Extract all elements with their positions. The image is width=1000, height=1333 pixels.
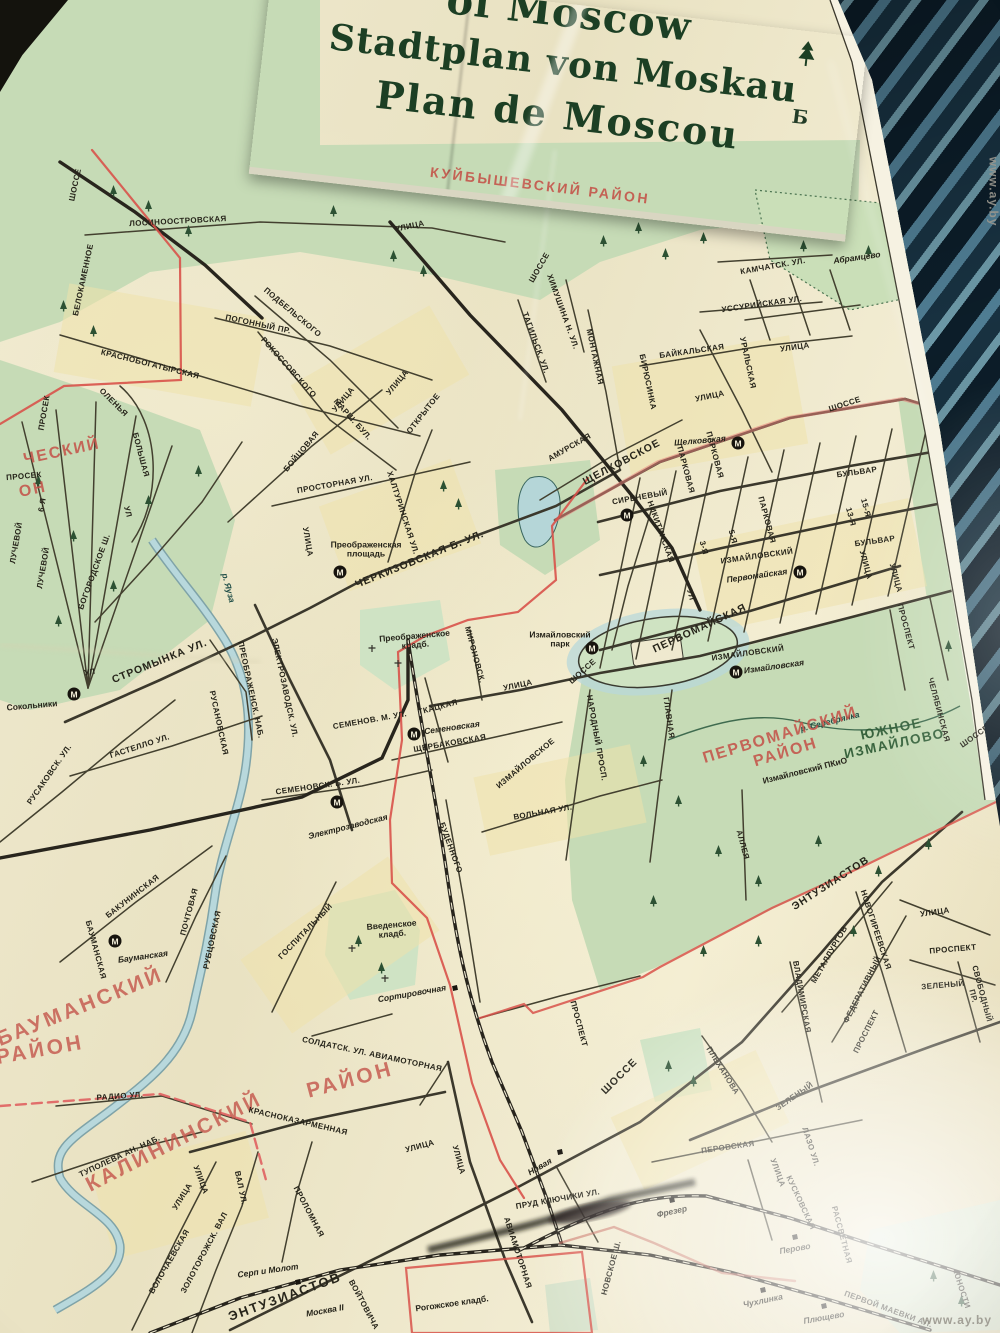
map-label: СВОБОДНЫЙ ПР.: [961, 965, 993, 1026]
metro-station-icon: М: [732, 437, 745, 450]
map-label: Перово: [779, 1242, 811, 1257]
map-label: ПРОСПЕКТ: [568, 1000, 589, 1048]
map-label: УЛИЦА: [768, 1158, 786, 1189]
map-label: ПЕРВОМАЙСКАЯ: [651, 602, 748, 656]
map-label: РАССВЕТНАЯ: [829, 1205, 853, 1264]
map-label: УЛИЦА: [191, 1165, 209, 1196]
map-photo: КУЙБЫШЕВСКИЙ РАЙОНЛОСИНООСТРОВСКАЯУЛИЦАШ…: [0, 0, 1000, 1333]
map-label: ЛОСИНООСТРОВСКАЯ: [129, 215, 227, 229]
metro-station-icon: М: [408, 728, 421, 741]
metro-station-icon: М: [334, 566, 347, 579]
map-label: 13-Я: [843, 507, 856, 528]
map-label: СОЛДАТСК. УЛ. АВИАМОТОРНАЯ: [301, 1036, 443, 1074]
map-label: ЩЕЛКОВСКОЕ: [581, 438, 662, 489]
map-label: Семеновская: [424, 719, 481, 736]
map-label: ШОССЕ: [528, 251, 552, 284]
map-label: ПЛЕХАНОВА: [704, 1046, 740, 1097]
map-label: ПЕРВОЙ МАЕВКИ АЛ.: [843, 1290, 934, 1330]
map-label: УССУРИЙСКАЯ УЛ.: [721, 295, 803, 315]
map-label: РАДИО УЛ.: [96, 1091, 143, 1103]
map-label: Абрамцево: [833, 250, 881, 266]
rail-station-icon: [792, 1234, 798, 1240]
map-label: ЧЕСКИЙ: [22, 435, 102, 468]
map-label: р. Серебрянка: [799, 710, 860, 734]
map-label: ЮЖНОЕ ИЗМАЙЛОВО: [840, 712, 946, 762]
map-label: ГЛАВНАЯ: [661, 697, 676, 739]
metro-station-icon: М: [794, 566, 807, 579]
map-label: УЛИЦА: [887, 563, 903, 594]
map-label: РУСАНОВСКАЯ: [207, 690, 229, 756]
map-label: БАУМАНСКИЙ: [0, 963, 167, 1051]
map-label: ЧЕРКИЗОВСКАЯ Б. УЛ.: [354, 529, 486, 591]
map-label: БАЙКАЛЬСКАЯ: [659, 343, 725, 361]
map-label: ХИМУШИНА Н. УЛ.: [544, 273, 579, 350]
map-label: Фрезер: [656, 1204, 688, 1220]
map-label: УРАЛЬСКАЯ: [737, 336, 757, 389]
map-label: ФЕДЕРАТИВНЫЙ: [842, 955, 883, 1025]
map-label: Измайловская: [743, 658, 804, 676]
map-label: ПАРКОВАЯ: [756, 496, 777, 545]
map-label: СЕМЕНОВ. М. УЛ.: [332, 710, 407, 732]
map-label: ОЛЕНЬЯ: [97, 387, 129, 419]
map-label: Преображенское кладб.: [379, 629, 451, 654]
map-label: ЛАЗО УЛ.: [800, 1126, 821, 1167]
map-label: УЛИЦА: [300, 527, 314, 558]
map-label: ЭНТУЗИАСТОВ: [790, 855, 871, 914]
map-label: 5-Я: [726, 529, 738, 545]
map-label: ЛУЧЕВОЙ: [9, 522, 25, 565]
map-label: ПРЕОБРАЖЕНСК. НАБ.: [235, 641, 264, 740]
map-label: Плющево: [803, 1310, 845, 1326]
map-label: РАЙОН: [0, 1031, 86, 1069]
map-label: БИРЮСИНКА: [637, 353, 657, 410]
map-label: Бауманская: [117, 949, 168, 965]
map-label: Чухлинка: [742, 1292, 783, 1310]
map-label: ОН: [17, 478, 48, 501]
map-label: УЛ: [684, 589, 695, 602]
map-label: ХАЛТУРИНСКАЯ УЛ.: [384, 470, 419, 555]
map-label: ЭНТУЗИАСТОВ: [226, 1270, 343, 1324]
map-label: ВОЙТОВИЧА: [346, 1279, 380, 1332]
map-label: Сортировочная: [377, 983, 447, 1004]
map-label: ВЛАДИМИРСКАЯ: [790, 960, 811, 1034]
map-label: ГАСТЕЛЛО УЛ.: [109, 733, 171, 761]
map-label: Преображенская площадь: [331, 541, 402, 560]
map-label: УЛИЦА: [331, 386, 357, 414]
map-label: УЛ: [121, 506, 132, 519]
map-label: СТРОМЫНКА УЛ.: [111, 638, 210, 687]
metro-station-icon: М: [586, 642, 599, 655]
map-label: ОТКРЫТОЕ: [406, 392, 443, 436]
rail-station-icon: [760, 1287, 766, 1293]
map-label: 15-Я: [858, 498, 871, 519]
map-label: ПОДБЕЛЬСКОГО: [262, 286, 323, 339]
map-label: Рогожское кладб.: [415, 1294, 489, 1314]
map-label: МИРОНОВСК.: [462, 626, 486, 685]
map-label: БУЛЬВАР: [854, 535, 896, 549]
map-label: ПРОСТОРНАЯ УЛ.: [296, 474, 373, 496]
map-label: БАУМАНСКАЯ: [83, 920, 107, 981]
map-label: Сокольники: [6, 699, 58, 713]
map-label: ПРОСПЕКТ: [895, 603, 916, 651]
map-label: Введенское кладб.: [366, 919, 417, 942]
metro-station-icon: М: [68, 688, 81, 701]
map-label: УЛИЦА: [503, 679, 534, 694]
map-label: БОЛЬШАЯ: [130, 432, 150, 478]
metro-station-icon: М: [730, 666, 743, 679]
map-label: УЛИЦА: [920, 907, 951, 920]
map-label: ПРОСПЕКТ: [929, 944, 977, 957]
map-label: ПРОСПЕКТ: [852, 1009, 881, 1055]
metro-station-icon: М: [109, 935, 122, 948]
rail-station-icon: [669, 1197, 675, 1203]
map-label: НАРОДНЫЙ ПРОСП.: [584, 694, 608, 781]
map-label: УЛИЦА: [405, 1139, 436, 1155]
map-label: КРАСНОКАЗАРМЕННАЯ: [248, 1106, 349, 1137]
map-label: Первомайская: [726, 567, 788, 585]
map-label: Электрозаводская: [307, 813, 388, 842]
map-label: ВАЛ УЛ.: [232, 1170, 248, 1205]
map-label: Измайловский ПКиО: [762, 756, 848, 786]
map-label: ГОСПИТАЛЬНЫЙ: [277, 902, 335, 961]
rail-station-icon: [452, 985, 458, 991]
map-label: ИЗМАЙЛОВСКИЙ: [720, 548, 794, 567]
map-label: ПРОСЕК: [38, 395, 53, 432]
map-label: ЩЕРБАКОВСКАЯ: [413, 733, 487, 754]
map-label: ПЕРВОМАЙСКИЙ РАЙОН: [674, 695, 892, 792]
map-label: Щелковская: [674, 434, 726, 448]
map-label: ПОЧТОВАЯ: [179, 887, 200, 936]
map-label: ЛУЧЕВОЙ: [36, 547, 52, 590]
map-label: Серп и Молот: [237, 1262, 299, 1280]
map-label: ЗЕЛЕНЫЙ: [921, 980, 965, 993]
metro-station-icon: М: [621, 509, 634, 522]
map-label: АЛЛЕЯ: [734, 829, 750, 860]
map-label: ВОЛЬНАЯ УЛ.: [513, 804, 573, 823]
map-label: УЛИЦА: [450, 1145, 466, 1176]
map-label: КУСКОВСКАЯ: [784, 1175, 817, 1232]
map-label: СИРЕНЕВЫЙ: [612, 489, 669, 507]
map-label: УЛИЦА: [857, 550, 873, 581]
map-label: БЕЛОКАМЕННОЕ: [72, 243, 96, 317]
map-label: ШОССЕ: [600, 1057, 641, 1098]
map-label: БОЙЦОВАЯ: [283, 430, 322, 474]
map-label: АВИАМОТОРНАЯ: [501, 1216, 532, 1289]
map-label: БУДЕННОГО: [437, 822, 463, 875]
map-label: ПАРКОВАЯ: [675, 446, 696, 495]
map-label: ПРОСЕК: [6, 471, 42, 483]
map-label: СЕМЕНОВСК. Б. УЛ.: [275, 777, 361, 798]
map-paper: КУЙБЫШЕВСКИЙ РАЙОНЛОСИНООСТРОВСКАЯУЛИЦАШ…: [0, 0, 1000, 1333]
map-label: ПОГОННЫЙ ПР.: [224, 314, 291, 337]
map-label: ШОССЕ: [68, 168, 83, 202]
map-label: КРАСНОБОГАТЫРСКАЯ: [100, 349, 200, 382]
map-label: ЭЛЕКТРОЗАВОДСК. УЛ.: [269, 638, 299, 739]
map-label: НОВСКОЕ Ш.: [600, 1240, 623, 1297]
map-label: МОНТАЖНАЯ: [584, 328, 604, 386]
rail-station-icon: [821, 1303, 827, 1309]
map-label: ЗЕЛЕНЫЙ: [775, 1081, 816, 1113]
map-label: ВОЛОЧАЕВСКАЯ: [148, 1228, 192, 1295]
map-label: УЛИЦА: [695, 390, 726, 405]
map-label: ШОССЕ: [828, 396, 862, 415]
map-label: ТУПОЛЕВА АН. НАБ.: [78, 1134, 162, 1179]
map-label: КАЛИНИНСКИЙ: [82, 1088, 266, 1197]
map-label: РОКОССОВСКОГО: [259, 336, 318, 400]
map-label: УЛИЦА: [780, 342, 811, 355]
map-label: ПРУД КЛЮЧИКИ УЛ.: [515, 1188, 600, 1211]
map-label: УЛИЦА: [385, 369, 411, 397]
map-label: ИЗМАЙЛОВСКИЙ: [711, 645, 785, 664]
map-label: БАКУНИНСКАЯ: [105, 873, 162, 920]
map-label: РАЙОН: [304, 1057, 396, 1102]
map-label: УЛ: [84, 668, 96, 679]
map-label: ТАГИЛЬСК. УЛ.: [520, 311, 550, 375]
map-label: 3-Я: [697, 540, 709, 556]
map-label: РУБЦОВСКАЯ: [202, 910, 223, 970]
map-label: РУСАКОВСК. УЛ.: [26, 743, 74, 806]
map-label: УЛИЦА: [395, 220, 426, 235]
map-label: Москва II: [305, 1303, 344, 1319]
rail-station-icon: [295, 1279, 301, 1285]
map-label: р. Яуза: [220, 572, 237, 603]
map-label: МЕТАЛЛУРГОВ: [810, 925, 850, 985]
map-label: ПАРКОВАЯ: [704, 431, 725, 480]
map-label: НИКИТИНСКАЯ: [645, 500, 676, 564]
map-label: УЛИЦА: [171, 1182, 194, 1212]
map-label: ЗОЛОТОРОЖСК. ВАЛ: [180, 1211, 230, 1295]
map-label: БОГОРОДСКОЕ Ш.: [77, 533, 113, 611]
map-label: ПРОЛОМНАЯ: [291, 1185, 325, 1239]
rail-station-icon: [557, 1149, 563, 1155]
map-label: ПЕРОВСКАЯ: [701, 1140, 756, 1156]
map-label: БУЛЬВАР: [836, 466, 878, 480]
metro-station-icon: М: [331, 796, 344, 809]
map-label: ЮНОСТИ: [951, 1270, 971, 1310]
map-label: КАМЧАТСК. УЛ.: [740, 257, 807, 277]
map-label: ШОССЕ: [568, 658, 599, 687]
map-label: ТКАЦКАЯ: [417, 698, 459, 717]
map-label: МАРШ. БУЛ.: [331, 398, 373, 443]
map-label: Измайловский парк: [529, 631, 590, 650]
map-label: 6-Я: [37, 497, 48, 512]
map-label: Новая: [526, 1156, 553, 1177]
map-label: НОВОГИРЕЕВСКАЯ: [858, 889, 892, 971]
map-label: АМУРСКАЯ: [547, 432, 593, 464]
map-label: ЧЕЛЯБИНСКАЯ: [925, 677, 951, 743]
map-label: ИЗМАЙЛОВСКОЕ: [495, 737, 557, 791]
